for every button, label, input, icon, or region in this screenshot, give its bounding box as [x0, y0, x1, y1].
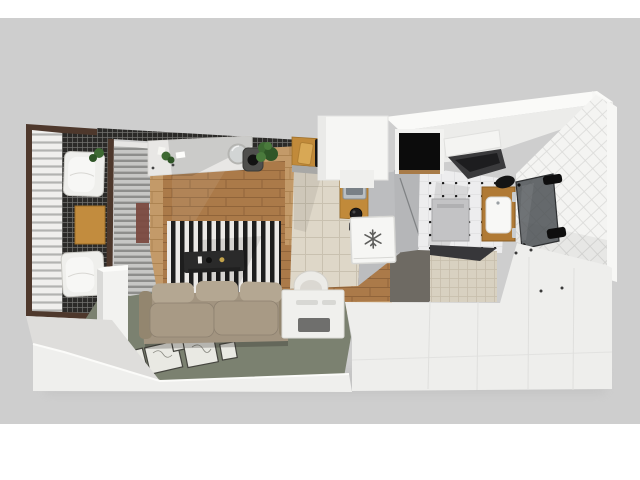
back-cushion: [196, 281, 238, 301]
apartment-3d-floorplan-render: [0, 0, 640, 480]
fridge: [350, 216, 396, 264]
cutting-board: [297, 142, 313, 165]
hardware-dot: [540, 290, 543, 293]
balcony-glazing-shutters: [32, 130, 62, 312]
glass-fitting: [517, 183, 520, 186]
entrance-step: [340, 170, 374, 188]
plant-leaf: [256, 152, 266, 162]
entrance-wall-block: [318, 116, 388, 188]
plant-leaf: [168, 157, 175, 164]
plant-leaf: [89, 154, 97, 162]
seat-cushion: [150, 303, 214, 337]
cabinet-drawer: [298, 318, 330, 332]
back-cushion: [240, 281, 283, 302]
back-cushion: [152, 282, 195, 303]
niche-sill: [399, 170, 440, 174]
wardrobe-niche: [399, 133, 440, 170]
desk-item: [172, 164, 175, 167]
radiator-panel: [136, 203, 149, 243]
seat-cushion: [214, 301, 278, 335]
plant-leaf: [264, 142, 272, 150]
hardware-dot: [515, 252, 518, 255]
cabinet-vent: [296, 300, 318, 305]
washing-machine-detail: [437, 204, 464, 208]
lounge-chair: [63, 151, 105, 196]
balcony-coffee-table: [75, 206, 105, 244]
hardware-dot: [530, 249, 533, 252]
paper: [176, 151, 186, 158]
shower-zone-floor: [394, 167, 420, 253]
tv-console: [184, 250, 245, 273]
desk-item: [152, 167, 155, 170]
hardware-dot: [561, 287, 564, 290]
render-canvas: [0, 0, 640, 480]
cabinet-vent: [322, 300, 336, 305]
sofa: [139, 281, 292, 349]
kettle-highlight: [353, 211, 356, 214]
letterbox-band-bottom: [0, 424, 640, 480]
entrance-block-shade: [318, 116, 326, 180]
candle: [198, 256, 202, 263]
basin-faucet: [496, 201, 499, 204]
